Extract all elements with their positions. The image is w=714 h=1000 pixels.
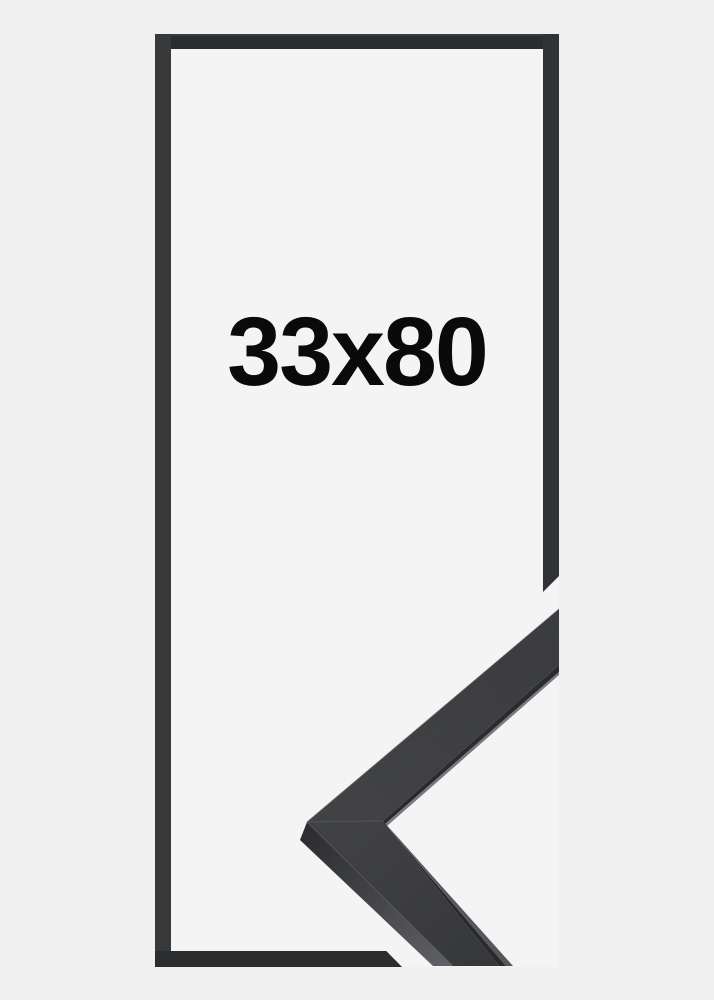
frame-size-graphic: 33x80 <box>155 34 559 967</box>
product-image: 33x80 <box>0 0 714 1000</box>
corner-moulding-photo <box>155 34 559 967</box>
mitre-seam <box>308 821 382 822</box>
